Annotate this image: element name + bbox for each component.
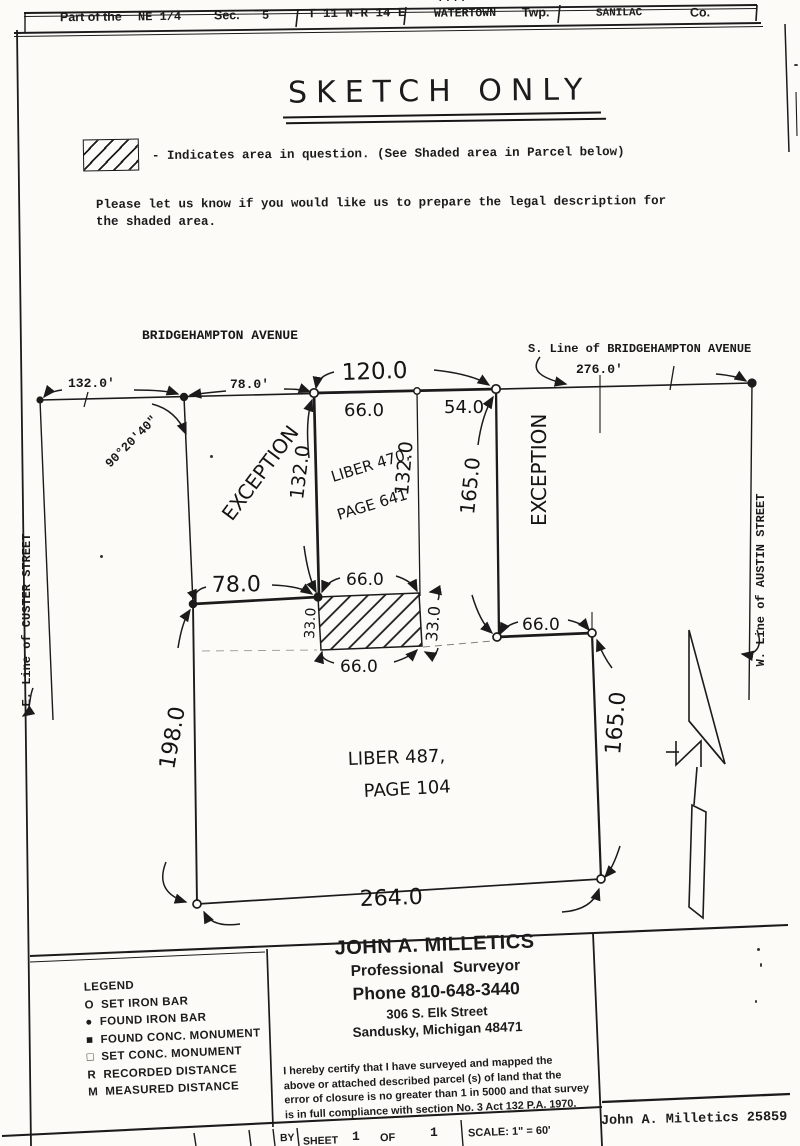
surveyor-block: JOHN A. MILLETICS Professional Surveyor … bbox=[278, 929, 593, 1043]
legend-block: LEGEND O SET IRON BAR ● FOUND IRON BAR ■… bbox=[84, 972, 264, 1102]
found-iron-bar-marker bbox=[313, 592, 322, 601]
set-iron-bar-marker bbox=[597, 875, 605, 883]
street-label-w-line-austin: W. Line of AUSTIN STREET bbox=[754, 494, 768, 667]
street-label-bridgehampton: BRIDGEHAMPTON AVENUE bbox=[142, 328, 298, 343]
angle-label: 90°20'40" bbox=[103, 413, 161, 471]
boundary-lines bbox=[40, 366, 752, 904]
dim-66-hatch-top: 66.0 bbox=[346, 570, 384, 590]
request-note-line2: the shaded area. bbox=[96, 215, 216, 229]
legend-symbol-recorded-distance: R bbox=[87, 1069, 96, 1081]
shaded-area-in-question bbox=[318, 593, 422, 650]
scan-speckle bbox=[760, 963, 762, 967]
dim-66-top: 66.0 bbox=[344, 400, 384, 421]
survey-drawing: BRIDGEHAMPTON AVENUE S. Line of BRIDGEHA… bbox=[0, 300, 800, 946]
lower-parcel-west: 198.0 bbox=[155, 705, 191, 771]
legend-symbol-found-conc-monument: ■ bbox=[86, 1034, 94, 1046]
scan-speckle bbox=[100, 555, 103, 558]
upper-parcel-depth-east: 132.0 bbox=[391, 440, 418, 496]
request-note-line1: Please let us know if you would like us … bbox=[96, 194, 666, 212]
dim-78ft: 78.0' bbox=[230, 377, 269, 392]
dim-132ft: 132.0' bbox=[68, 376, 115, 391]
found-iron-bar-marker bbox=[36, 396, 43, 403]
street-label-e-line-custer: E. Line of CUSTER STREET bbox=[20, 534, 34, 707]
survey-sketch-page: .... Part of the NE 1/4 Sec. 5 T 11 N-R … bbox=[0, 0, 800, 1146]
upper-parcel-page: PAGE 641 bbox=[335, 485, 410, 523]
upper-parcel-depth-west: 132.0 bbox=[286, 444, 314, 501]
page-title: SKETCH ONLY bbox=[288, 72, 592, 110]
monument-markers bbox=[36, 378, 756, 908]
footer-sheet-value: 1 bbox=[352, 1129, 360, 1144]
header-sec-label: Sec. bbox=[214, 8, 240, 22]
set-iron-bar-marker bbox=[493, 633, 501, 641]
dim-33-right: 33.0 bbox=[422, 605, 444, 642]
legend-symbol-found-iron-bar: ● bbox=[85, 1016, 93, 1028]
title-underline2 bbox=[286, 118, 606, 124]
exception-left-label: EXCEPTION bbox=[217, 421, 304, 525]
lower-parcel-liber: LIBER 487, bbox=[347, 746, 445, 770]
lower-parcel-page: PAGE 104 bbox=[363, 776, 451, 802]
certification-block: I hereby certify that I have surveyed an… bbox=[283, 1052, 605, 1123]
footer-scale: SCALE: 1" = 60' bbox=[468, 1125, 551, 1140]
header-town-range: T 11 N-R 14 E bbox=[308, 6, 406, 21]
footer-of-value: 1 bbox=[430, 1125, 438, 1140]
header-sec-value: 5 bbox=[262, 9, 269, 23]
set-iron-bar-marker bbox=[588, 629, 596, 637]
dim-66-hatch-bottom: 66.0 bbox=[340, 657, 378, 677]
scan-speckle bbox=[210, 455, 213, 458]
set-iron-bar-marker bbox=[414, 388, 420, 394]
dim-54: 54.0 bbox=[444, 397, 484, 418]
found-iron-bar-marker bbox=[180, 393, 188, 401]
scan-speckle bbox=[794, 64, 798, 66]
upper-parcel-liber: LIBER 470, bbox=[329, 445, 412, 486]
dim-276ft: 276.0' bbox=[576, 362, 623, 377]
exception-right-label: EXCEPTION bbox=[527, 414, 551, 526]
dim-120: 120.0 bbox=[341, 358, 408, 386]
legend-symbol-set-iron-bar: O bbox=[84, 999, 94, 1011]
header-twp-label: Twp. bbox=[522, 5, 550, 19]
set-iron-bar-marker bbox=[310, 389, 318, 397]
header-county: SANILAC bbox=[596, 7, 642, 20]
header-quarter: NE 1/4 bbox=[138, 10, 181, 25]
header-band: Part of the NE 1/4 Sec. 5 T 11 N-R 14 E … bbox=[0, 0, 800, 40]
street-label-s-line-bridgehampton: S. Line of BRIDGEHAMPTON AVENUE bbox=[528, 342, 751, 356]
dim-66-east: 66.0 bbox=[522, 615, 560, 635]
hatch-swatch bbox=[83, 139, 140, 172]
dimension-leader-arrows bbox=[23, 357, 759, 925]
lower-parcel-south: 264.0 bbox=[359, 885, 423, 912]
exception-depth-165: 165.0 bbox=[455, 456, 485, 515]
scan-speckle bbox=[757, 948, 760, 951]
lower-parcel-east: 165.0 bbox=[601, 691, 631, 756]
legend-symbol-measured-distance: M bbox=[88, 1086, 98, 1098]
surveyor-signature: John A. Milletics 25859 bbox=[601, 1110, 788, 1129]
header-co-label: Co. bbox=[690, 5, 710, 19]
footer-of-label: OF bbox=[380, 1132, 396, 1145]
header-township: WATERTOWN bbox=[434, 7, 496, 21]
set-iron-bar-marker bbox=[492, 385, 500, 393]
set-iron-bar-marker bbox=[193, 900, 201, 908]
found-iron-bar-marker bbox=[747, 378, 756, 387]
dim-78-mid: 78.0 bbox=[212, 572, 261, 598]
footer-sheet-label: SHEET bbox=[303, 1134, 338, 1146]
scan-speckle bbox=[755, 1000, 757, 1003]
footer-by-label: BY bbox=[280, 1132, 295, 1145]
found-iron-bar-marker bbox=[189, 600, 198, 609]
hatch-note: - Indicates area in question. (See Shade… bbox=[152, 145, 625, 163]
dim-33-left: 33.0 bbox=[302, 607, 320, 639]
legend-symbol-set-conc-monument: □ bbox=[87, 1051, 95, 1063]
north-arrow bbox=[666, 630, 725, 918]
header-part-label: Part of the bbox=[60, 10, 122, 25]
